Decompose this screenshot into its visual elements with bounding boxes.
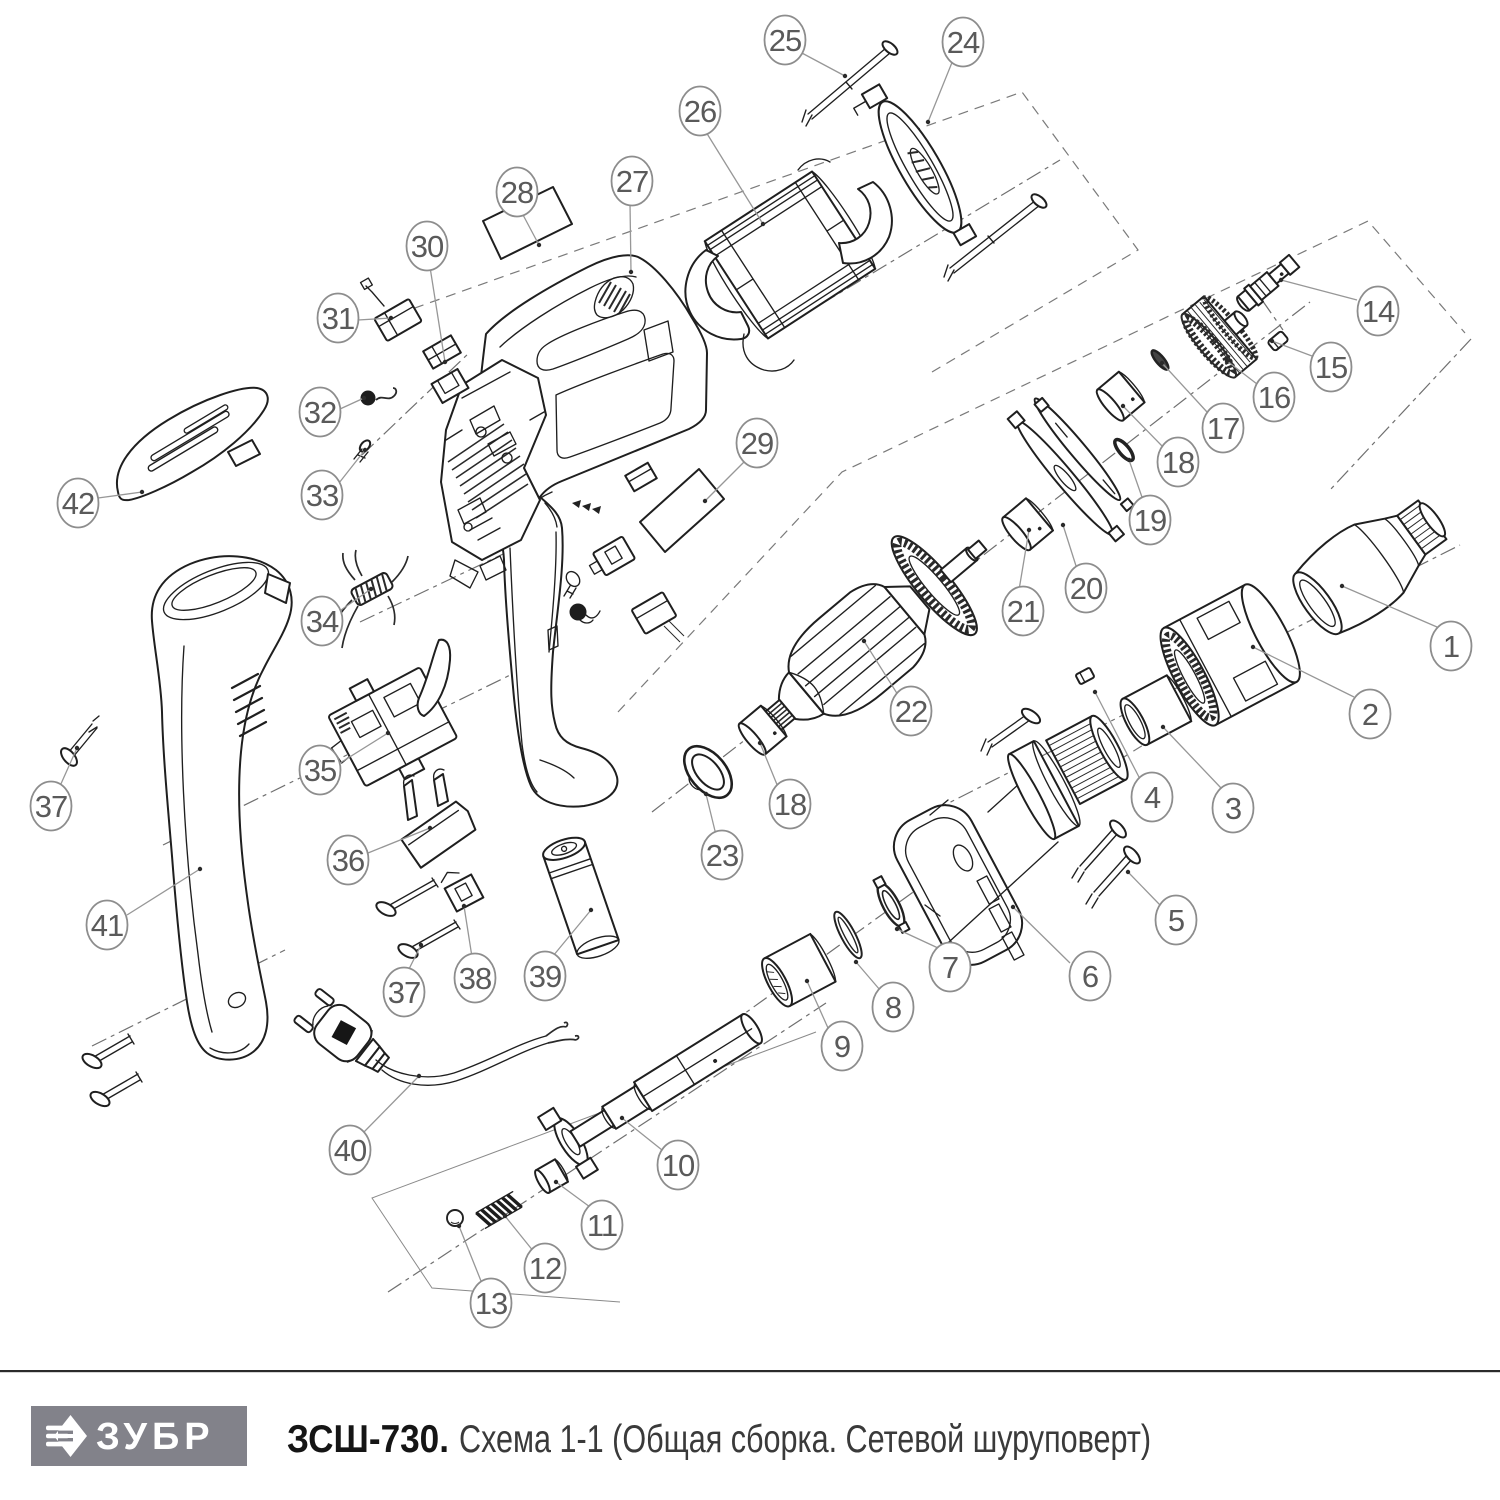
- svg-text:9: 9: [834, 1029, 850, 1064]
- svg-text:40: 40: [334, 1133, 367, 1168]
- svg-text:39: 39: [529, 959, 561, 994]
- svg-text:36: 36: [332, 843, 364, 878]
- svg-text:10: 10: [662, 1148, 695, 1183]
- svg-text:42: 42: [62, 486, 94, 521]
- svg-text:17: 17: [1207, 411, 1239, 446]
- svg-text:6: 6: [1082, 959, 1098, 994]
- svg-text:4: 4: [1144, 780, 1161, 815]
- svg-text:1: 1: [1443, 629, 1459, 664]
- svg-text:23: 23: [706, 838, 738, 873]
- svg-text:28: 28: [501, 175, 533, 210]
- svg-text:21: 21: [1007, 594, 1039, 629]
- svg-text:35: 35: [304, 753, 336, 788]
- svg-text:33: 33: [306, 478, 338, 513]
- svg-text:29: 29: [741, 426, 773, 461]
- svg-text:41: 41: [91, 908, 123, 943]
- svg-text:Схема 1-1 (Общая сборка. Сетев: Схема 1-1 (Общая сборка. Сетевой шурупов…: [459, 1418, 1151, 1461]
- svg-text:25: 25: [769, 23, 801, 58]
- svg-text:38: 38: [459, 961, 491, 996]
- svg-text:37: 37: [35, 789, 67, 824]
- svg-text:ЗСШ-730.: ЗСШ-730.: [287, 1418, 449, 1461]
- svg-text:12: 12: [529, 1251, 561, 1286]
- svg-text:37: 37: [388, 975, 420, 1010]
- svg-text:13: 13: [475, 1286, 507, 1321]
- svg-text:30: 30: [411, 229, 444, 264]
- svg-text:19: 19: [1134, 503, 1166, 538]
- svg-text:20: 20: [1070, 571, 1103, 606]
- svg-text:3: 3: [1225, 791, 1241, 826]
- svg-text:15: 15: [1315, 350, 1347, 385]
- svg-text:24: 24: [947, 25, 980, 60]
- svg-text:18: 18: [774, 787, 806, 822]
- svg-text:7: 7: [942, 950, 958, 985]
- svg-text:27: 27: [616, 164, 648, 199]
- svg-text:34: 34: [306, 604, 339, 639]
- svg-text:ЗУБР: ЗУБР: [96, 1416, 215, 1458]
- svg-text:22: 22: [895, 694, 927, 729]
- svg-text:31: 31: [322, 301, 354, 336]
- svg-text:8: 8: [885, 990, 901, 1025]
- svg-text:16: 16: [1258, 380, 1290, 415]
- svg-text:2: 2: [1362, 697, 1378, 732]
- svg-text:5: 5: [1168, 903, 1184, 938]
- svg-text:26: 26: [684, 94, 716, 129]
- svg-text:11: 11: [587, 1208, 617, 1243]
- svg-text:18: 18: [1162, 445, 1194, 480]
- svg-text:14: 14: [1362, 294, 1395, 329]
- svg-text:32: 32: [304, 395, 336, 430]
